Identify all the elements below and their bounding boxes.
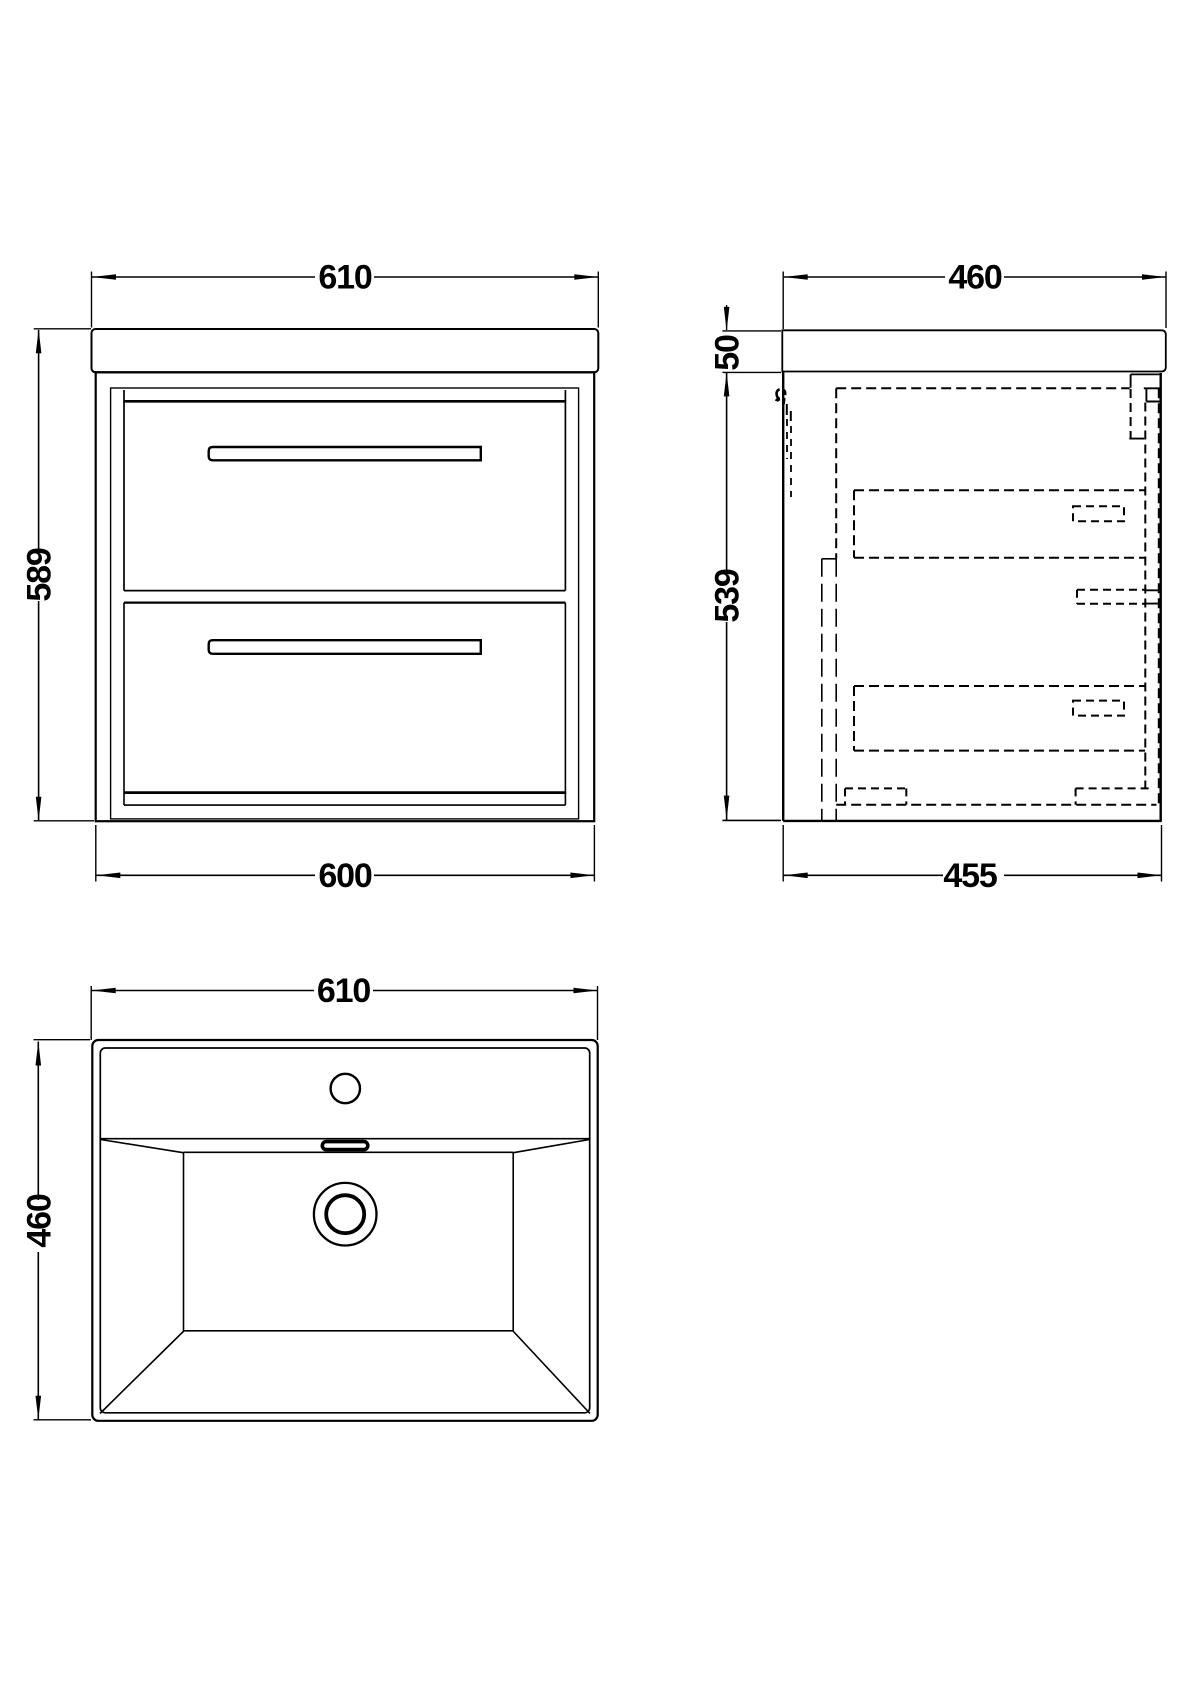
svg-text:600: 600 (318, 857, 371, 895)
svg-text:539: 539 (709, 569, 747, 622)
svg-text:460: 460 (948, 259, 1001, 297)
svg-text:610: 610 (317, 972, 370, 1010)
svg-text:610: 610 (318, 259, 371, 297)
svg-text:455: 455 (943, 857, 996, 895)
svg-text:589: 589 (21, 548, 59, 601)
svg-text:460: 460 (20, 1194, 58, 1247)
svg-text:50: 50 (709, 335, 747, 371)
